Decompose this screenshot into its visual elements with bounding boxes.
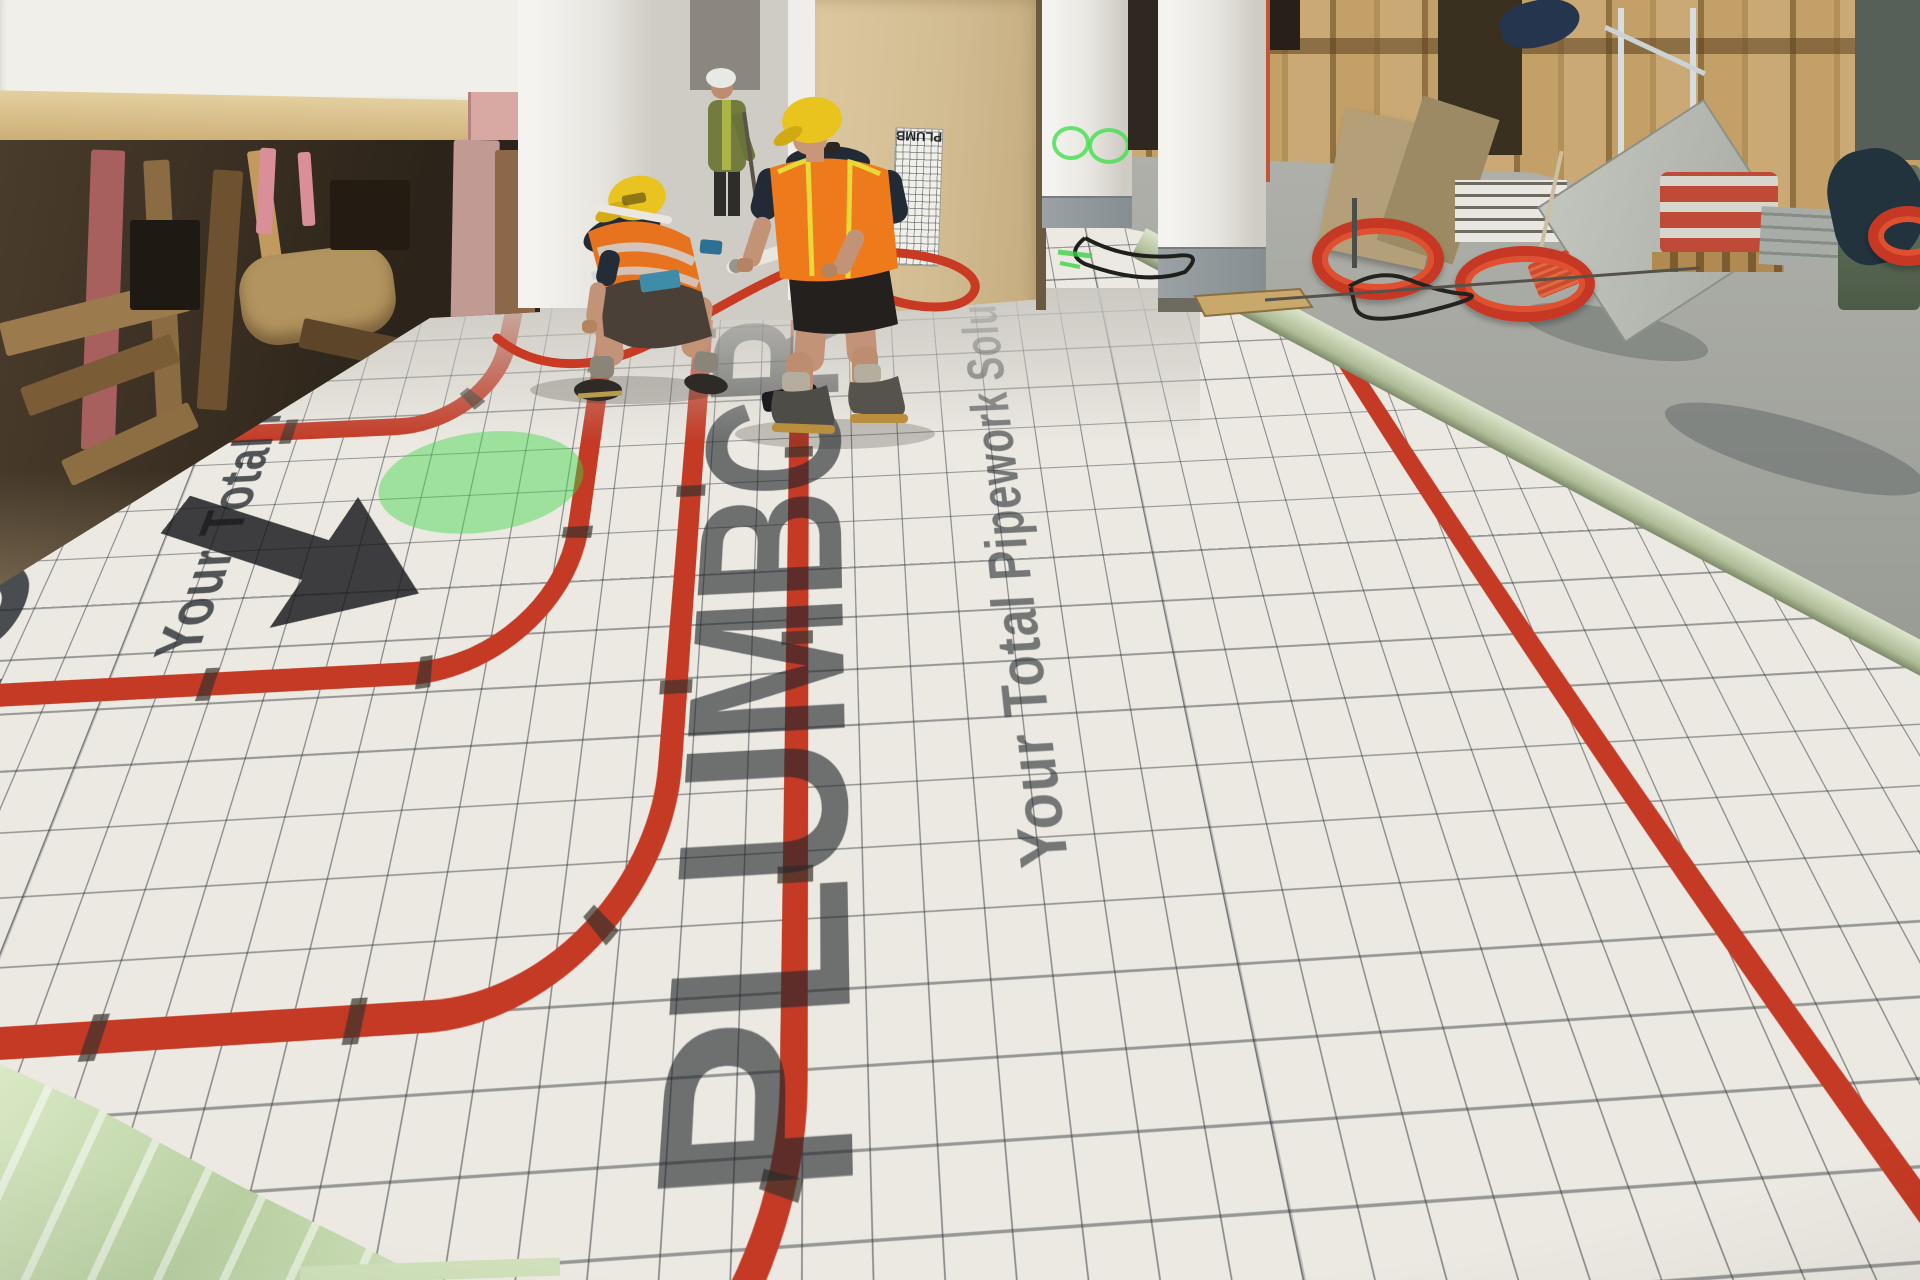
sock-cuff	[782, 372, 810, 392]
cable-tangle	[1075, 238, 1193, 277]
white-hard-hat	[706, 68, 736, 88]
green-mark	[1058, 252, 1092, 256]
background-worker	[706, 68, 762, 242]
shadow	[735, 419, 935, 449]
timber-offcut-on-floor	[1195, 289, 1312, 316]
conduit-pipe	[1265, 268, 1700, 300]
cable-tangle	[1350, 275, 1472, 319]
sock-cuff	[854, 364, 881, 383]
worker-standing	[729, 93, 910, 434]
boot-sole	[850, 414, 908, 423]
figures-layer	[0, 0, 1920, 1280]
construction-photo: PLUMBCRAFTYour Total Pipework Solution P…	[0, 0, 1920, 1280]
green-mark	[1060, 263, 1080, 267]
hi-vis-vest	[770, 158, 898, 281]
blue-object	[699, 239, 722, 255]
